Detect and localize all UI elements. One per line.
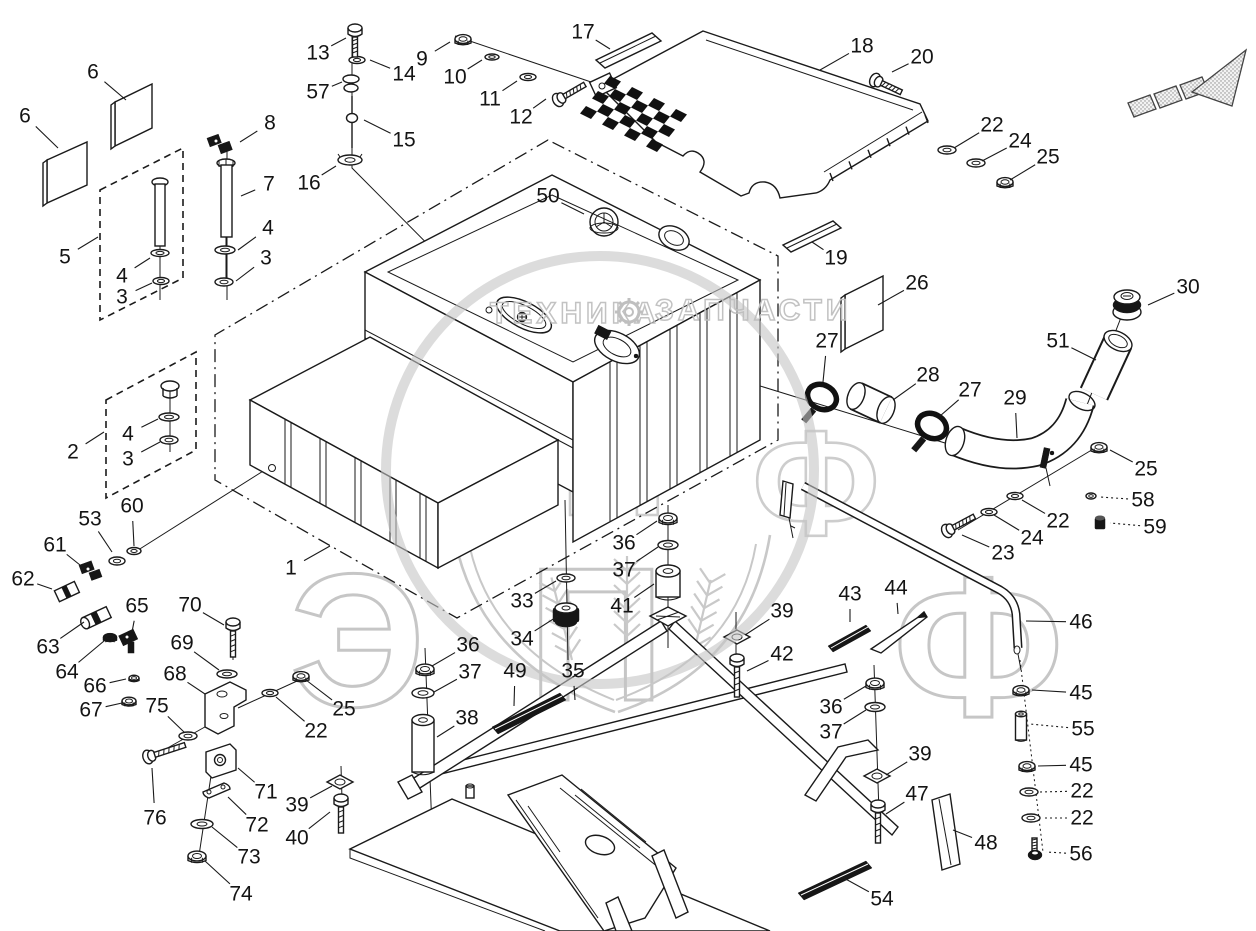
- callout-label: 47: [905, 783, 928, 806]
- callout-label: 36: [456, 634, 479, 657]
- callout-label: 70: [178, 594, 201, 617]
- callout-label: 72: [245, 814, 268, 837]
- callout-leader: [212, 827, 237, 848]
- callout-leader: [238, 237, 256, 250]
- washer: [981, 509, 997, 516]
- callout-label: 6: [87, 61, 99, 84]
- callout-label: 18: [850, 35, 873, 58]
- callout-label: 42: [770, 643, 793, 666]
- nut: [122, 697, 136, 706]
- callout-label: 39: [285, 794, 308, 817]
- callout-leader: [982, 148, 1007, 161]
- callout-label: 24: [1008, 130, 1032, 153]
- callout-label: 38: [455, 707, 478, 730]
- callout-label: 34: [510, 628, 534, 651]
- callout-leader: [86, 432, 104, 444]
- spacer-sleeve: [656, 565, 680, 600]
- callout-leader: [1046, 852, 1066, 853]
- callout-label: 25: [1036, 146, 1059, 169]
- callout-leader: [994, 515, 1019, 530]
- callout-leader: [141, 419, 158, 427]
- callout-leader: [747, 661, 769, 671]
- bolt: [141, 738, 187, 765]
- spacer-sleeve: [1016, 711, 1027, 741]
- callout-leader: [67, 554, 80, 565]
- washer: [865, 703, 885, 712]
- bolt: [334, 794, 348, 833]
- direction-arrow-icon: [1128, 50, 1246, 117]
- callout-leader: [309, 812, 330, 829]
- callout-label: 13: [306, 42, 329, 65]
- bolt-13-group: [338, 75, 362, 165]
- dipstick-5: [152, 178, 168, 278]
- washer: [159, 413, 179, 421]
- callout-leader: [437, 726, 454, 737]
- callout-label: 27: [815, 330, 838, 353]
- washer: [191, 820, 213, 829]
- washer: [967, 159, 985, 167]
- callout-leader: [194, 652, 219, 670]
- callout-label: 69: [170, 632, 193, 655]
- callout-leader: [432, 653, 455, 666]
- callout-label: 30: [1176, 276, 1199, 299]
- callout-leader: [1110, 523, 1140, 526]
- washer: [160, 436, 178, 444]
- callout-label: 29: [1003, 387, 1026, 410]
- square-washer: [864, 769, 890, 783]
- washer: [262, 690, 278, 697]
- callout-label: 1: [285, 557, 297, 580]
- nut: [455, 35, 471, 45]
- bolt: [226, 618, 240, 657]
- callout-label: 41: [610, 595, 633, 618]
- callout-label: 28: [916, 364, 939, 387]
- callout-leader: [135, 258, 150, 268]
- callout-label: 56: [1069, 843, 1092, 866]
- callout-leader: [820, 53, 849, 70]
- washer: [215, 278, 233, 286]
- callout-label: 37: [458, 661, 481, 684]
- callout-leader: [514, 686, 515, 706]
- callout-leader: [240, 131, 257, 142]
- callout-leader: [1071, 348, 1096, 360]
- callout-label: 76: [143, 807, 166, 830]
- callout-label: 43: [838, 583, 861, 606]
- callout-leader: [238, 768, 255, 782]
- callout-label: 55: [1071, 718, 1094, 741]
- spacer-sleeve: [412, 715, 434, 775]
- callout-label: 67: [79, 699, 102, 722]
- watermark-title-right: ЗАПЧАСТИ: [655, 294, 851, 327]
- callout-label: 24: [1020, 527, 1044, 550]
- callout-leader: [98, 531, 112, 552]
- callout-label: 2: [67, 441, 79, 464]
- washer: [151, 250, 169, 257]
- callout-label: 12: [509, 106, 532, 129]
- callout-leader: [1040, 791, 1067, 792]
- strip-54: [798, 861, 872, 900]
- nut: [416, 664, 434, 676]
- pad-6b: [111, 84, 152, 149]
- callout-leader: [1038, 765, 1066, 766]
- callout-label: 53: [78, 508, 101, 531]
- block-71: [206, 744, 236, 778]
- callout-leader: [133, 521, 134, 546]
- bolt-56: [1028, 838, 1042, 860]
- callout-leader: [106, 703, 122, 707]
- callout-leader: [60, 622, 84, 638]
- callout-leader: [844, 686, 866, 699]
- callout-leader: [36, 126, 58, 148]
- callout-label: 4: [122, 423, 134, 446]
- callout-leader: [1100, 497, 1128, 499]
- callout-label: 9: [416, 48, 428, 71]
- bolt: [550, 78, 588, 108]
- callout-label: 17: [571, 21, 594, 44]
- nut: [188, 851, 206, 863]
- callout-label: 7: [263, 173, 275, 196]
- callout-label: 50: [536, 185, 559, 208]
- callout-label: 45: [1069, 682, 1092, 705]
- callout-label: 65: [125, 595, 148, 618]
- washer: [217, 670, 237, 678]
- callout-label: 4: [116, 265, 128, 288]
- callout-label: 22: [1070, 780, 1093, 803]
- callout-leader: [892, 64, 909, 72]
- callout-leader: [435, 42, 450, 51]
- callout-leader: [1110, 450, 1133, 462]
- washer: [658, 541, 678, 550]
- dipstick-7: [207, 134, 235, 280]
- fuel-tank: [250, 175, 760, 568]
- callout-label: 22: [304, 720, 327, 743]
- callout-label: 63: [36, 636, 59, 659]
- callout-leader: [310, 786, 332, 798]
- callout-label: 68: [163, 663, 186, 686]
- washer: [1020, 788, 1038, 796]
- callout-label: 48: [974, 832, 997, 855]
- callout-label: 73: [237, 846, 260, 869]
- callout-label: 45: [1069, 754, 1092, 777]
- callout-label: 22: [1046, 510, 1069, 533]
- callout-label: 5: [59, 246, 71, 269]
- callout-leader: [940, 400, 959, 416]
- fitting-34: [553, 603, 579, 627]
- callout-label: 3: [260, 247, 272, 270]
- callout-label: 27: [958, 379, 981, 402]
- callout-leader: [954, 133, 979, 148]
- screw-59: [1095, 516, 1105, 530]
- washer: [1086, 493, 1096, 499]
- nut: [659, 513, 677, 525]
- top-cover-panel: [580, 31, 928, 198]
- callout-label: 3: [116, 286, 128, 309]
- link-72: [203, 783, 230, 798]
- callout-leader: [236, 267, 254, 281]
- callout-leader: [187, 682, 205, 694]
- callout-label: 19: [824, 247, 847, 270]
- callout-label: 74: [229, 883, 253, 906]
- pad-6a: [43, 142, 87, 206]
- callout-leader: [1148, 293, 1174, 305]
- callout-label: 66: [83, 675, 106, 698]
- parts-diagram: Э П Ф Э П Ф: [0, 0, 1256, 931]
- parts-diagram-page: Э П Ф Э П Ф: [0, 0, 1256, 931]
- strip-48: [932, 794, 960, 870]
- callout-leader: [502, 81, 517, 91]
- callout-leader: [136, 283, 152, 291]
- callout-leader: [110, 679, 126, 683]
- callout-label: 44: [884, 577, 908, 600]
- washer: [1007, 493, 1023, 500]
- callout-label: 59: [1143, 516, 1166, 539]
- callout-leader: [844, 710, 866, 724]
- watermark-letter: Ф: [893, 536, 1064, 759]
- callout-label: 8: [264, 112, 276, 135]
- callout-leader: [205, 861, 230, 884]
- callout-label: 33: [510, 590, 533, 613]
- callout-label: 71: [254, 781, 277, 804]
- nut: [1091, 443, 1107, 453]
- nut: [1019, 762, 1035, 772]
- bolt: [348, 24, 362, 57]
- callout-leader: [1026, 621, 1066, 622]
- callout-label: 39: [770, 600, 793, 623]
- callout-label: 36: [819, 696, 842, 719]
- callout-leader: [203, 613, 224, 625]
- callout-label: 15: [392, 129, 415, 152]
- callout-label: 75: [145, 695, 168, 718]
- callout-leader: [78, 641, 104, 662]
- callout-leader: [468, 60, 482, 69]
- callout-label: 35: [561, 660, 584, 683]
- callout-leader: [228, 797, 246, 815]
- callout-leader: [842, 877, 869, 892]
- callout-label: 37: [819, 721, 842, 744]
- callout-leader: [322, 166, 336, 175]
- callout-label: 11: [479, 88, 501, 111]
- callout-label: 22: [1070, 807, 1093, 830]
- callout-label: 37: [612, 559, 635, 582]
- callout-label: 25: [1134, 458, 1157, 481]
- callout-label: 16: [297, 172, 320, 195]
- nut: [103, 633, 117, 642]
- washer: [127, 548, 141, 555]
- callout-label: 26: [905, 272, 928, 295]
- callout-label: 61: [43, 534, 66, 557]
- callout-leader: [434, 679, 457, 692]
- callout-leader: [823, 356, 826, 382]
- washer: [412, 688, 434, 698]
- washer: [1022, 814, 1040, 822]
- callout-leader: [1022, 500, 1045, 513]
- callout-label: 6: [19, 105, 31, 128]
- callout-leader: [886, 762, 907, 775]
- callout-leader: [1016, 413, 1017, 438]
- callout-label: 4: [262, 217, 274, 240]
- nut: [129, 675, 139, 682]
- callout-label: 14: [392, 63, 416, 86]
- washer: [938, 146, 956, 154]
- dashed-box-2: [106, 352, 196, 498]
- callout-label: 39: [908, 743, 931, 766]
- callout-label: 62: [11, 568, 34, 591]
- washer: [153, 278, 169, 285]
- washer: [179, 732, 197, 740]
- callout-label: 49: [503, 660, 526, 683]
- callout-label: 58: [1131, 489, 1154, 512]
- washer: [215, 246, 235, 254]
- callout-leader: [332, 82, 342, 86]
- dashed-box-5: [100, 148, 183, 320]
- callout-label: 40: [285, 827, 308, 850]
- frame-arm: [805, 740, 878, 801]
- callout-leader: [168, 716, 184, 732]
- callout-label: 36: [612, 532, 635, 555]
- bracket-68: [205, 682, 246, 734]
- callout-label: 22: [980, 114, 1003, 137]
- washer: [109, 557, 125, 565]
- callout-label: 57: [306, 81, 329, 104]
- strap-hook: [780, 481, 793, 518]
- callout-leader: [812, 242, 824, 250]
- callout-label: 3: [122, 448, 134, 471]
- nut: [866, 678, 884, 690]
- nut: [1013, 686, 1029, 696]
- callout-leader: [37, 584, 52, 589]
- callout-leader: [596, 40, 610, 49]
- callout-leader: [533, 99, 546, 108]
- callout-label: 23: [991, 542, 1014, 565]
- callout-label: 10: [443, 66, 466, 89]
- callout-leader: [141, 442, 160, 452]
- callout-leader: [893, 384, 916, 400]
- callout-label: 20: [910, 46, 933, 69]
- callout-label: 60: [120, 495, 143, 518]
- callout-leader: [364, 120, 391, 133]
- washer: [557, 574, 575, 582]
- callout-leader: [78, 237, 98, 249]
- callout-label: 54: [870, 888, 894, 911]
- callout-leader: [331, 38, 346, 46]
- callout-leader: [886, 802, 904, 814]
- callout-leader: [152, 768, 154, 803]
- washer: [485, 54, 499, 60]
- callout-leader: [370, 60, 390, 68]
- strip-43: [828, 625, 871, 652]
- breather-cap: [1113, 290, 1141, 320]
- washer: [520, 74, 536, 81]
- callout-leader: [241, 190, 255, 196]
- callout-label: 46: [1069, 611, 1092, 634]
- callout-label: 25: [332, 698, 355, 721]
- callout-label: 51: [1046, 330, 1069, 353]
- watermark-words: ТЕХНИКА ЗАПЧАСТИ: [490, 294, 851, 330]
- callout-label: 64: [55, 661, 79, 684]
- callout-leader: [104, 82, 126, 100]
- callout-leader: [1010, 165, 1035, 180]
